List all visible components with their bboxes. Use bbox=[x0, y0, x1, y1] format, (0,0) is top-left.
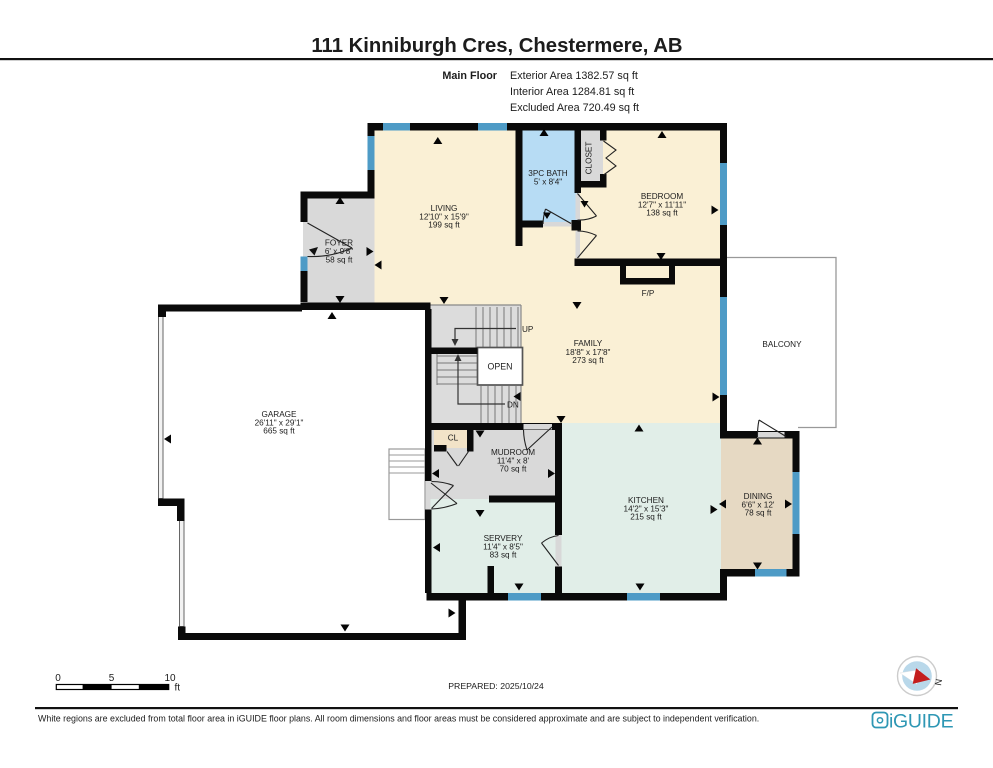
svg-text:0: 0 bbox=[55, 673, 61, 684]
svg-text:78 sq ft: 78 sq ft bbox=[745, 509, 773, 518]
svg-text:5' x 8'4": 5' x 8'4" bbox=[534, 177, 562, 186]
svg-text:CLOSET: CLOSET bbox=[585, 142, 594, 175]
svg-text:58 sq ft: 58 sq ft bbox=[326, 256, 354, 265]
svg-text:665 sq ft: 665 sq ft bbox=[263, 427, 295, 436]
svg-text:215 sq ft: 215 sq ft bbox=[630, 513, 662, 522]
svg-text:Exterior Area 1382.57 sq ft: Exterior Area 1382.57 sq ft bbox=[510, 70, 638, 82]
svg-text:F/P: F/P bbox=[642, 289, 655, 298]
svg-text:Interior Area 1284.81 sq ft: Interior Area 1284.81 sq ft bbox=[510, 86, 634, 98]
svg-text:DN: DN bbox=[507, 401, 519, 410]
svg-text:White regions are excluded fro: White regions are excluded from total fl… bbox=[38, 714, 759, 724]
svg-text:ft: ft bbox=[175, 683, 181, 694]
svg-text:iGUIDE: iGUIDE bbox=[889, 711, 954, 733]
svg-text:Excluded Area 720.49 sq ft: Excluded Area 720.49 sq ft bbox=[510, 102, 639, 114]
svg-text:FAMILY: FAMILY bbox=[574, 339, 603, 348]
svg-text:70 sq ft: 70 sq ft bbox=[500, 465, 528, 474]
svg-text:199 sq ft: 199 sq ft bbox=[428, 221, 460, 230]
svg-text:UP: UP bbox=[522, 325, 534, 334]
svg-text:5: 5 bbox=[109, 673, 115, 684]
svg-text:Main Floor: Main Floor bbox=[442, 70, 497, 82]
svg-text:CL: CL bbox=[448, 434, 459, 443]
svg-text:138 sq ft: 138 sq ft bbox=[646, 209, 678, 218]
svg-text:111 Kinniburgh Cres, Chesterme: 111 Kinniburgh Cres, Chestermere, AB bbox=[311, 35, 682, 57]
svg-text:BALCONY: BALCONY bbox=[762, 340, 802, 349]
svg-text:PREPARED: 2025/10/24: PREPARED: 2025/10/24 bbox=[448, 681, 544, 691]
svg-text:273 sq ft: 273 sq ft bbox=[572, 356, 604, 365]
svg-text:83 sq ft: 83 sq ft bbox=[490, 551, 518, 560]
svg-text:OPEN: OPEN bbox=[488, 362, 513, 372]
